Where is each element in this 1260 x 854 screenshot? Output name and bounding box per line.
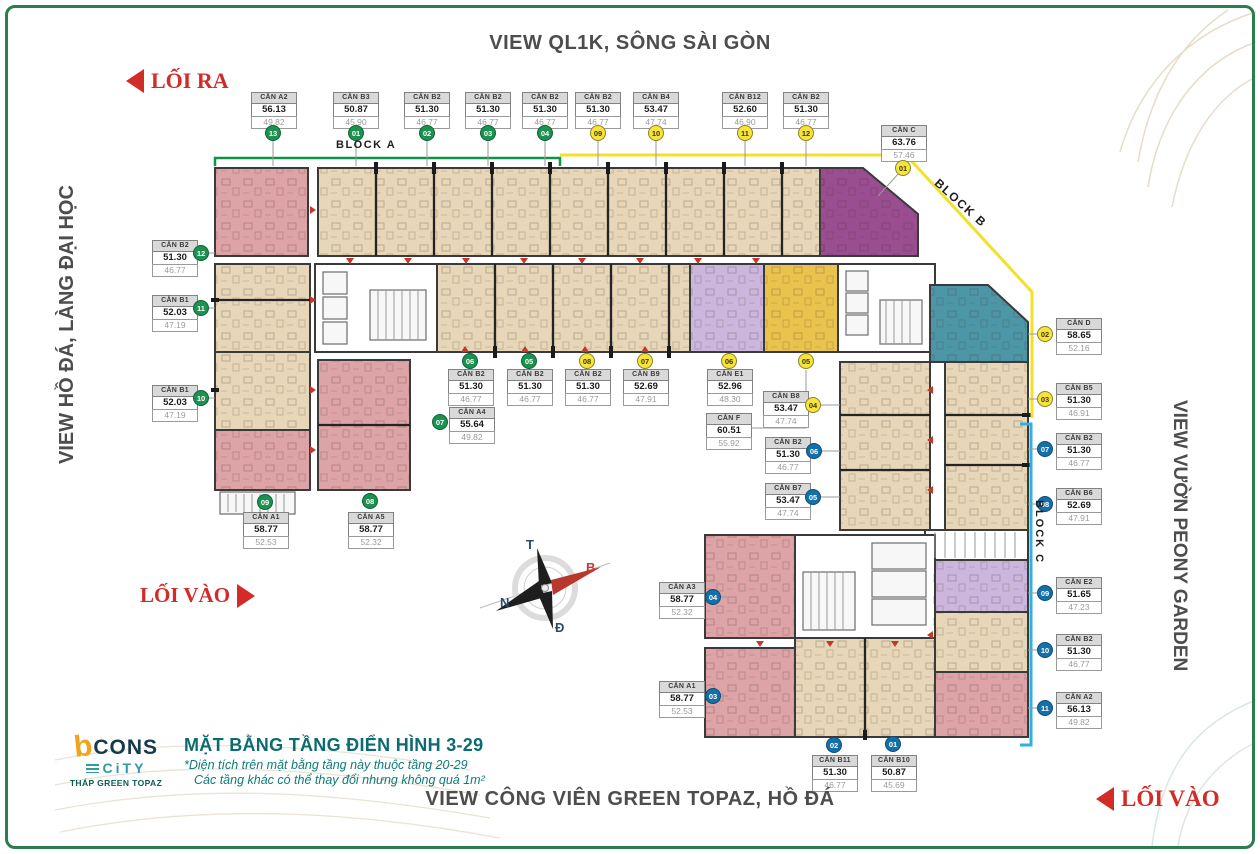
unit-area-net: 46.77	[565, 393, 611, 406]
unit-area-net: 46.77	[765, 461, 811, 474]
unit-label: CĂN E251.6547.23	[1056, 577, 1102, 614]
unit-label: CĂN B251.3046.77	[152, 240, 198, 277]
unit-label: CĂN B753.4747.74	[765, 483, 811, 520]
unit-area-net: 52.53	[659, 705, 705, 718]
unit-labels-layer: CĂN A256.1349.8213CĂN B350.8745.9001CĂN …	[0, 0, 1260, 854]
unit-label: CĂN E152.9648.30	[707, 369, 753, 406]
unit-area-total: 53.47	[763, 402, 809, 416]
unit-badge: 09	[257, 494, 273, 510]
unit-badge: 06	[806, 443, 822, 459]
unit-area-total: 52.69	[1056, 499, 1102, 513]
unit-area-total: 51.30	[812, 766, 858, 780]
unit-label: CĂN B251.3046.77	[1056, 433, 1102, 470]
unit-area-total: 58.77	[659, 593, 705, 607]
view-title-bottom: VIEW CÔNG VIÊN GREEN TOPAZ, HỒ ĐÁ	[0, 788, 1260, 811]
view-title-left: VIEW HỒ ĐÁ, LÀNG ĐẠI HỌC	[56, 150, 79, 500]
logo-bars-icon	[86, 764, 99, 773]
unit-badge: 08	[362, 493, 378, 509]
unit-badge: 06	[462, 353, 478, 369]
unit-area-total: 58.77	[348, 523, 394, 537]
unit-badge: 02	[826, 737, 842, 753]
exit-label: LỐI RA	[151, 68, 229, 94]
unit-label: CĂN A256.1349.82	[251, 92, 297, 129]
unit-area-total: 58.77	[243, 523, 289, 537]
unit-label: CĂN B251.3046.77	[783, 92, 829, 129]
unit-label: CĂN A455.6449.82	[449, 407, 495, 444]
compass-west-label: T	[526, 537, 534, 552]
unit-badge: 09	[590, 125, 606, 141]
logo-b-glyph: b	[73, 734, 94, 760]
unit-area-total: 52.60	[722, 103, 768, 117]
unit-area-total: 51.30	[765, 448, 811, 462]
arrow-left-icon	[1096, 787, 1114, 811]
unit-area-net: 55.92	[706, 437, 752, 450]
unit-badge: 07	[432, 414, 448, 430]
unit-label: CĂN B652.6947.91	[1056, 488, 1102, 525]
legend-text-block: MẶT BẰNG TẦNG ĐIỂN HÌNH 3-29 *Diện tích …	[184, 735, 485, 788]
unit-label: CĂN A558.7752.32	[348, 512, 394, 549]
unit-badge: 11	[1037, 700, 1053, 716]
unit-badge: 07	[1037, 441, 1053, 457]
unit-badge: 11	[193, 300, 209, 316]
unit-label: CĂN B251.3046.77	[765, 437, 811, 474]
unit-label: CĂN C63.7657.46	[881, 125, 927, 162]
unit-area-net: 52.53	[243, 536, 289, 549]
unit-area-total: 60.51	[706, 424, 752, 438]
unit-badge: 02	[419, 125, 435, 141]
unit-area-net: 48.30	[707, 393, 753, 406]
unit-area-net: 52.32	[348, 536, 394, 549]
plan-note-2: Các tầng khác có thể thay đổi nhưng khôn…	[184, 773, 485, 788]
unit-area-total: 52.69	[623, 380, 669, 394]
unit-label: CĂN B251.3046.77	[507, 369, 553, 406]
unit-badge: 06	[721, 353, 737, 369]
unit-area-net: 47.74	[765, 507, 811, 520]
entry-gate-left: LỐI VÀO	[140, 583, 255, 608]
unit-badge: 12	[193, 245, 209, 261]
unit-area-net: 46.91	[1056, 407, 1102, 420]
entry-gate-bottom-right: LỐI VÀO	[1096, 786, 1220, 812]
unit-label: CĂN B251.3046.77	[565, 369, 611, 406]
unit-area-net: 47.19	[152, 319, 198, 332]
unit-label: CĂN B251.3046.77	[1056, 634, 1102, 671]
unit-label: CĂN B551.3046.91	[1056, 383, 1102, 420]
unit-area-total: 51.30	[404, 103, 450, 117]
unit-area-total: 51.30	[152, 251, 198, 265]
unit-badge: 12	[798, 125, 814, 141]
unit-badge: 04	[705, 589, 721, 605]
unit-area-total: 56.13	[251, 103, 297, 117]
block-c-label: BLOCK C	[1033, 500, 1045, 564]
view-title-top: VIEW QL1K, SÔNG SÀI GÒN	[0, 32, 1260, 55]
unit-area-total: 51.30	[1056, 394, 1102, 408]
bcons-city-logo: b CONS CiTY THÁP GREEN TOPAZ	[62, 735, 170, 788]
unit-badge: 08	[579, 353, 595, 369]
unit-area-total: 53.47	[633, 103, 679, 117]
unit-area-total: 52.96	[707, 380, 753, 394]
unit-area-net: 47.19	[152, 409, 198, 422]
compass-south-label: N	[500, 595, 509, 610]
unit-area-total: 51.30	[565, 380, 611, 394]
view-title-right: VIEW VƯỜN PEONY GARDEN	[1168, 398, 1190, 673]
unit-label: CĂN B853.4747.74	[763, 391, 809, 428]
unit-label: CĂN B1252.6046.90	[722, 92, 768, 129]
unit-area-total: 51.30	[448, 380, 494, 394]
unit-badge: 04	[805, 397, 821, 413]
unit-label: CĂN D58.6552.16	[1056, 318, 1102, 355]
unit-badge: 01	[895, 160, 911, 176]
unit-label: CĂN A158.7752.53	[243, 512, 289, 549]
unit-area-total: 52.03	[152, 396, 198, 410]
unit-area-net: 46.77	[152, 264, 198, 277]
unit-label: CĂN B152.0347.19	[152, 295, 198, 332]
unit-area-net: 46.77	[507, 393, 553, 406]
legend: b CONS CiTY THÁP GREEN TOPAZ MẶT BẰNG TẦ…	[62, 735, 485, 788]
unit-badge: 10	[648, 125, 664, 141]
unit-badge: 03	[1037, 391, 1053, 407]
unit-area-net: 47.23	[1056, 601, 1102, 614]
block-a-label: BLOCK A	[336, 139, 396, 151]
unit-label: CĂN B251.3046.77	[465, 92, 511, 129]
unit-label: CĂN F60.5155.92	[706, 413, 752, 450]
unit-label: CĂN A158.7752.53	[659, 681, 705, 718]
unit-badge: 05	[798, 353, 814, 369]
unit-label: CĂN B952.6947.91	[623, 369, 669, 406]
logo-tower-name: THÁP GREEN TOPAZ	[62, 779, 170, 788]
unit-area-total: 51.30	[1056, 444, 1102, 458]
unit-area-total: 51.30	[1056, 645, 1102, 659]
unit-badge: 10	[193, 390, 209, 406]
entry-bottom-right-label: LỐI VÀO	[1121, 786, 1220, 812]
unit-badge: 13	[265, 125, 281, 141]
unit-label: CĂN B1050.8745.69	[871, 755, 917, 792]
unit-area-net: 52.32	[659, 606, 705, 619]
unit-area-total: 52.03	[152, 306, 198, 320]
unit-label: CĂN B453.4747.74	[633, 92, 679, 129]
unit-area-net: 47.91	[623, 393, 669, 406]
arrow-left-icon	[126, 69, 144, 93]
unit-label: CĂN B152.0347.19	[152, 385, 198, 422]
compass-east-label: Đ	[555, 620, 564, 635]
unit-area-net: 47.74	[763, 415, 809, 428]
unit-badge: 10	[1037, 642, 1053, 658]
unit-area-total: 50.87	[871, 766, 917, 780]
unit-area-total: 50.87	[333, 103, 379, 117]
unit-area-net: 46.77	[448, 393, 494, 406]
unit-area-total: 58.77	[659, 692, 705, 706]
unit-area-net: 46.77	[1056, 658, 1102, 671]
unit-badge: 05	[805, 489, 821, 505]
plan-note-1: *Diện tích trên mặt bằng tầng này thuộc …	[184, 758, 485, 773]
unit-area-total: 51.30	[522, 103, 568, 117]
unit-area-total: 51.30	[507, 380, 553, 394]
unit-badge: 09	[1037, 585, 1053, 601]
unit-area-net: 47.91	[1056, 512, 1102, 525]
entry-left-label: LỐI VÀO	[140, 583, 230, 608]
unit-badge: 03	[705, 688, 721, 704]
unit-area-total: 51.30	[783, 103, 829, 117]
unit-badge: 11	[737, 125, 753, 141]
unit-area-net: 46.77	[1056, 457, 1102, 470]
unit-label: CĂN B251.3046.77	[575, 92, 621, 129]
unit-label: CĂN B251.3046.77	[522, 92, 568, 129]
unit-badge: 07	[637, 353, 653, 369]
unit-area-total: 63.76	[881, 136, 927, 150]
unit-label: CĂN B251.3046.77	[404, 92, 450, 129]
logo-city-text: CiTY	[103, 761, 147, 775]
unit-area-total: 51.65	[1056, 588, 1102, 602]
logo-brand-text: CONS	[93, 737, 158, 759]
unit-badge: 04	[537, 125, 553, 141]
unit-badge: 02	[1037, 326, 1053, 342]
unit-area-net: 49.82	[1056, 716, 1102, 729]
unit-area-net: 49.82	[449, 431, 495, 444]
plan-title: MẶT BẰNG TẦNG ĐIỂN HÌNH 3-29	[184, 735, 485, 756]
exit-gate: LỐI RA	[126, 68, 229, 94]
arrow-right-icon	[237, 584, 255, 608]
unit-label: CĂN B251.3046.77	[448, 369, 494, 406]
floor-plan-page: CĂN A256.1349.8213CĂN B350.8745.9001CĂN …	[0, 0, 1260, 854]
unit-label: CĂN B1151.3046.77	[812, 755, 858, 792]
compass-north-label: B	[586, 560, 595, 575]
unit-area-total: 55.64	[449, 418, 495, 432]
unit-area-total: 51.30	[465, 103, 511, 117]
unit-label: CĂN B350.8745.90	[333, 92, 379, 129]
unit-label: CĂN A256.1349.82	[1056, 692, 1102, 729]
unit-area-total: 51.30	[575, 103, 621, 117]
unit-badge: 03	[480, 125, 496, 141]
unit-badge: 05	[521, 353, 537, 369]
unit-area-net: 52.16	[1056, 342, 1102, 355]
unit-area-total: 58.65	[1056, 329, 1102, 343]
unit-area-total: 56.13	[1056, 703, 1102, 717]
unit-label: CĂN A358.7752.32	[659, 582, 705, 619]
unit-badge: 01	[885, 736, 901, 752]
